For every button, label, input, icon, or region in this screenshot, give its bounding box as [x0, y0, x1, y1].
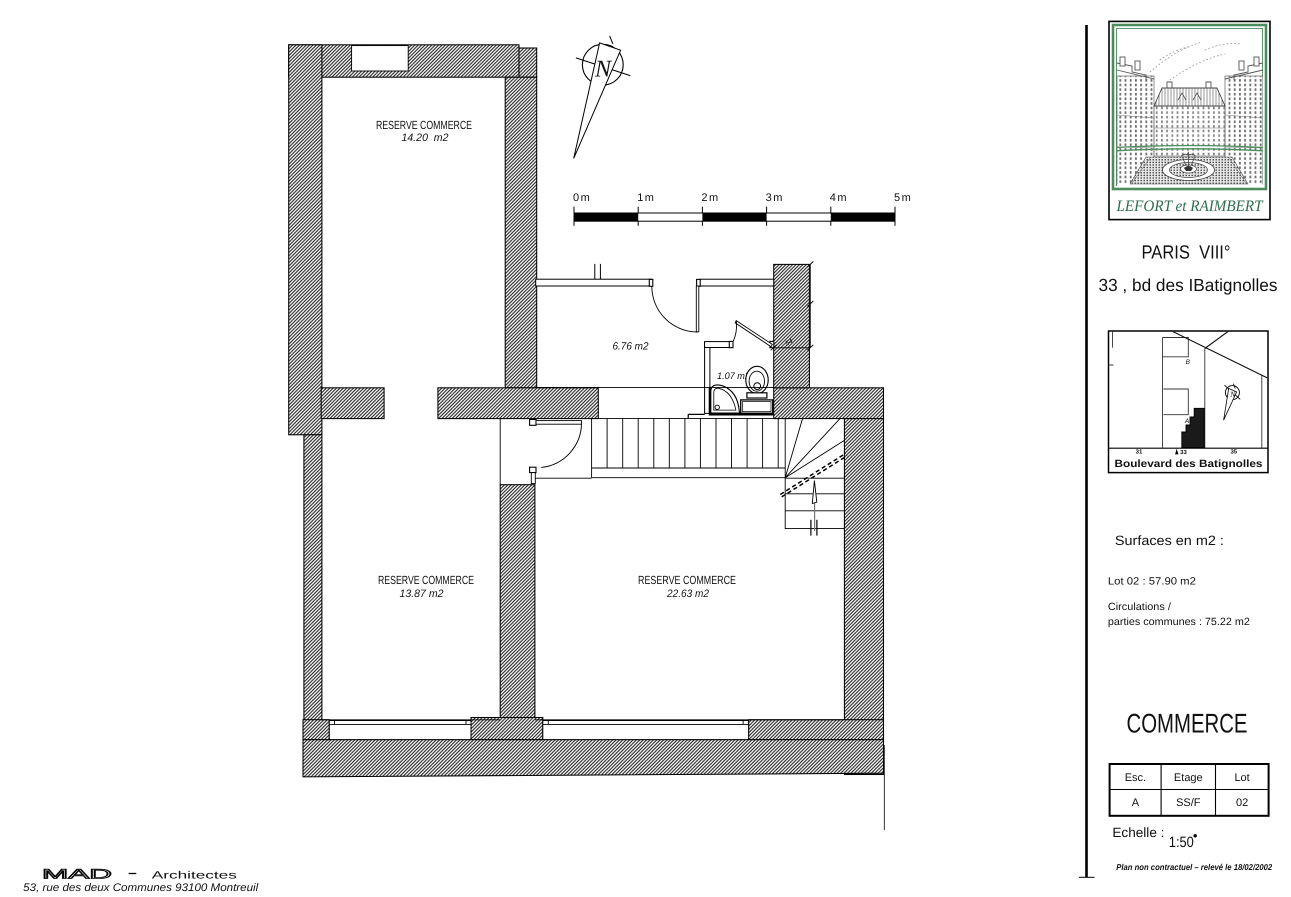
svg-text:0m: 0m — [573, 192, 591, 204]
svg-text:Architectes: Architectes — [152, 870, 237, 882]
svg-text:2m: 2m — [701, 192, 719, 204]
svg-text:B: B — [1186, 359, 1191, 366]
svg-text:3m: 3m — [766, 192, 784, 204]
svg-text:SS/F: SS/F — [1176, 797, 1201, 809]
svg-text:Plan non contractuel – relevé: Plan non contractuel – relevé le 18/02/2… — [1116, 862, 1272, 872]
svg-text:Esc.: Esc. — [1125, 772, 1146, 784]
svg-text:4m: 4m — [830, 192, 848, 204]
svg-text:5m: 5m — [894, 192, 912, 204]
svg-text:33 , bd des IBatignolles: 33 , bd des IBatignolles — [1099, 275, 1278, 295]
svg-text:35: 35 — [1230, 449, 1237, 456]
svg-text:A: A — [1184, 418, 1189, 425]
svg-text:Boulevard des Batignolles: Boulevard des Batignolles — [1115, 458, 1263, 470]
svg-text:1m: 1m — [637, 192, 655, 204]
svg-text:Surfaces en m2 :: Surfaces en m2 : — [1115, 533, 1224, 548]
svg-text:LEFORT et RAIMBERT: LEFORT et RAIMBERT — [1116, 198, 1264, 215]
svg-text:13.87 m2: 13.87 m2 — [400, 588, 444, 600]
svg-text:33: 33 — [1180, 449, 1187, 456]
svg-text:Lot 02 : 57.90 m2: Lot 02 : 57.90 m2 — [1108, 576, 1196, 588]
svg-text:Etage: Etage — [1174, 772, 1203, 784]
svg-text:PARIS VIII°: PARIS VIII° — [1142, 243, 1231, 264]
svg-text:31: 31 — [1136, 449, 1143, 456]
svg-text:02: 02 — [1236, 797, 1248, 809]
svg-text:14.20 m2: 14.20 m2 — [402, 132, 449, 144]
svg-text:1:50: 1:50 — [1169, 834, 1194, 851]
svg-text:22.63 m2: 22.63 m2 — [666, 588, 709, 600]
svg-text:COMMERCE: COMMERCE — [1127, 709, 1248, 739]
svg-text:MAD: MAD — [42, 867, 113, 882]
svg-text:RESERVE COMMERCE: RESERVE COMMERCE — [638, 573, 736, 587]
svg-text:53, rue des deux Communes 9310: 53, rue des deux Communes 93100 Montreui… — [23, 882, 259, 894]
svg-text:N: N — [1229, 390, 1236, 399]
svg-text:RESERVE COMMERCE: RESERVE COMMERCE — [378, 573, 474, 587]
svg-text:RESERVE COMMERCE: RESERVE COMMERCE — [376, 118, 472, 132]
svg-text:Lot: Lot — [1234, 772, 1249, 784]
svg-text:N: N — [594, 57, 613, 83]
svg-text:parties communes : 75.22 m2: parties communes : 75.22 m2 — [1108, 616, 1250, 628]
svg-text:Circulations /: Circulations / — [1108, 601, 1171, 613]
svg-text:6.76 m2: 6.76 m2 — [613, 341, 649, 353]
svg-text:A: A — [1132, 797, 1140, 809]
svg-text:Echelle :: Echelle : — [1112, 825, 1164, 840]
